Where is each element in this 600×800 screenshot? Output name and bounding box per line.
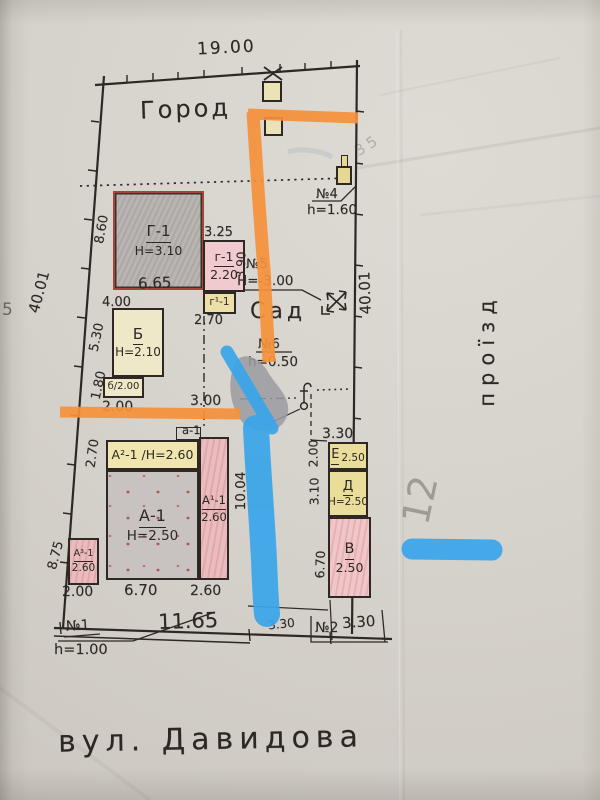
small-structure-icon-lower bbox=[264, 117, 283, 136]
faint-blue-smudge bbox=[288, 150, 332, 157]
dim-E-top: 3.30 bbox=[322, 426, 353, 442]
dim-top-19: 19.00 bbox=[197, 36, 257, 59]
building-A1-main: А-1 Н=2.50 bbox=[106, 470, 199, 580]
building-A3-height: 2.60 bbox=[72, 562, 95, 575]
mark-n2-label: №2 bbox=[315, 620, 338, 636]
building-D-label: Д bbox=[343, 478, 354, 497]
dim-G1-bottom: 6.65 bbox=[138, 273, 172, 292]
building-A3-label: А³-1 bbox=[74, 548, 94, 562]
porch-a1-label: а-1 bbox=[182, 423, 201, 437]
pencil-note-5: 5 bbox=[2, 300, 13, 320]
crossed-arrows-icon bbox=[322, 291, 346, 314]
mark-n6-label: №6 bbox=[258, 337, 280, 352]
building-g1-prime-label: г¹-1 bbox=[209, 296, 229, 309]
dim-V-left: 6.70 bbox=[312, 544, 328, 584]
dim-g1p-bottom: 2.70 bbox=[194, 313, 223, 328]
dim-A2-left: 2.70 bbox=[83, 433, 103, 475]
mark-n1-label: №1 bbox=[65, 617, 90, 635]
building-g1-prime: г¹-1 bbox=[203, 292, 236, 314]
building-A1-main-height: Н=2.50 bbox=[127, 528, 179, 545]
antenna-icon bbox=[264, 67, 282, 80]
building-B-annex: б/2.00 bbox=[103, 377, 144, 398]
building-B-height: Н=2.10 bbox=[115, 345, 161, 360]
dim-yard-300: 3.00 bbox=[190, 393, 221, 409]
pencil-note-35: 35 bbox=[351, 130, 384, 160]
dim-B-top: 4.00 bbox=[102, 295, 131, 310]
building-G1-label: Г-1 bbox=[146, 222, 170, 243]
dim-B-bottom: 2.00 bbox=[102, 399, 133, 415]
building-A1-main-label: А-1 bbox=[139, 506, 166, 528]
fence-dotted-upper bbox=[80, 178, 350, 186]
dim-E-left: 2.00 bbox=[306, 437, 321, 471]
mark-n1-value: h=1.00 bbox=[54, 642, 108, 658]
building-D-height: Н=2.50 bbox=[328, 496, 368, 509]
building-B-annex-label: б/2.00 bbox=[108, 381, 140, 394]
building-E-height: 2.50 bbox=[341, 452, 364, 465]
dim-A3-left: 8.75 bbox=[43, 532, 69, 578]
building-G1-height: Н=3.10 bbox=[135, 243, 183, 259]
building-E: Е 2.50 bbox=[328, 442, 368, 470]
building-E-label: Е bbox=[331, 447, 339, 465]
street-name-label: вул. Давидова bbox=[58, 719, 364, 759]
building-A2-label: А²-1 /Н=2.60 bbox=[112, 447, 194, 463]
small-structure-icon-upper bbox=[262, 81, 282, 102]
building-V-label: В bbox=[345, 540, 355, 560]
mark-n5-label: №5 bbox=[246, 257, 268, 272]
area-garden-label: Сад bbox=[250, 299, 306, 324]
building-A2: А²-1 /Н=2.60 bbox=[106, 440, 199, 470]
mark-n4-value: h=1.60 bbox=[307, 202, 357, 218]
gate-icon-n4-body bbox=[336, 166, 352, 185]
photographed-site-plan: Г-1 Н=3.10 г-1 2.20 г¹-1 Б Н=2.10 б/2.00… bbox=[0, 0, 600, 800]
tick-marks-top bbox=[127, 61, 331, 82]
building-B-label: Б bbox=[133, 325, 143, 346]
pencil-note-12: 12 bbox=[392, 466, 448, 534]
dim-B-left-upper: 5.30 bbox=[86, 316, 109, 358]
building-V-height: 2.50 bbox=[336, 560, 364, 576]
dim-street-1165: 11.65 bbox=[158, 608, 219, 634]
mark-n4-label: №4 bbox=[316, 187, 338, 202]
dim-A-bottom-left: 2.00 bbox=[62, 584, 93, 600]
area-city-label: Город bbox=[140, 93, 232, 124]
building-g1-small-label: г-1 bbox=[214, 249, 233, 267]
building-A3: А³-1 2.60 bbox=[68, 538, 99, 585]
dim-street-330: 3.30 bbox=[267, 616, 295, 633]
building-A1-wing-label: А¹-1 bbox=[202, 493, 226, 509]
building-D: Д Н=2.50 bbox=[328, 470, 368, 517]
mark-n6-value: h=0.50 bbox=[248, 354, 298, 370]
dim-g1-right: 3.90 bbox=[233, 245, 248, 285]
building-B: Б Н=2.10 bbox=[112, 308, 164, 377]
building-V: В 2.50 bbox=[328, 517, 371, 598]
dim-G1-left: 8.60 bbox=[91, 209, 113, 251]
area-passage-label: проїзд bbox=[475, 275, 499, 425]
dim-A-bottom-right: 2.60 bbox=[190, 583, 221, 599]
mark-n2-value: 3.30 bbox=[341, 612, 376, 632]
hydrant-icon bbox=[264, 383, 311, 426]
building-A1-wing: А¹-1 2.60 bbox=[199, 437, 229, 580]
building-A1-wing-height: 2.60 bbox=[201, 510, 227, 524]
dim-right-40: 40.01 bbox=[355, 262, 375, 325]
dim-A-bottom: 6.70 bbox=[124, 581, 157, 599]
dim-g1-top: 3.25 bbox=[204, 225, 233, 240]
dim-A1-right: 10.04 bbox=[233, 466, 249, 516]
dim-D-left: 3.10 bbox=[307, 474, 322, 510]
dim-left-40: 40.01 bbox=[22, 260, 55, 325]
